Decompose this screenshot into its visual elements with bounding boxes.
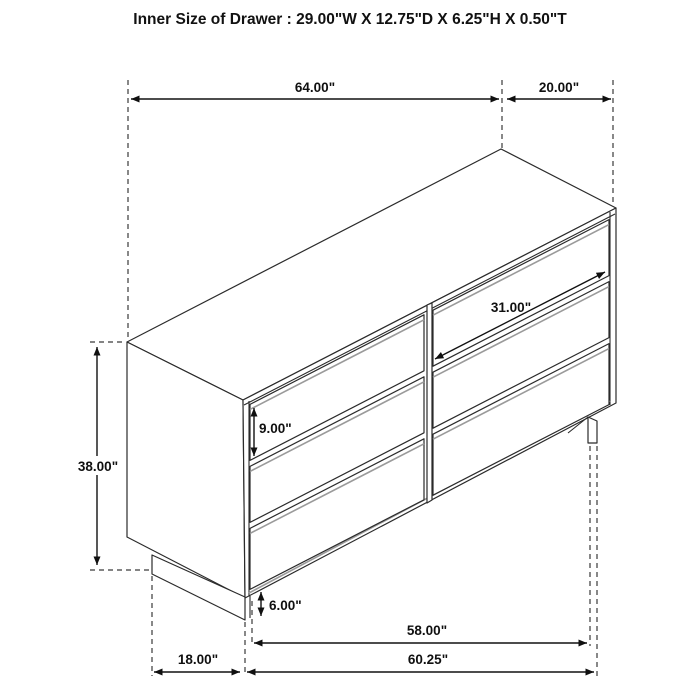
dimension-label: 64.00" [295,80,335,95]
base-right-leg [588,417,597,443]
diagram-title: Inner Size of Drawer : 29.00"W X 12.75"D… [133,11,567,28]
dimension-label: 38.00" [78,459,118,474]
dim-base-height-6: 6.00" [261,592,302,616]
dimension-label: 60.25" [408,652,448,667]
dimension-label: 9.00" [259,421,292,436]
center-stile [427,303,432,503]
dresser-dimension-diagram: Inner Size of Drawer : 29.00"W X 12.75"D… [0,0,700,700]
dim-bottom-depth-18: 18.00" [154,652,240,672]
dimension-label: 31.00" [491,300,531,315]
dim-height-38: 38.00" [71,347,125,565]
dim-top-width-64: 64.00" [131,80,499,99]
dimension-label: 6.00" [269,598,302,613]
dimension-label: 20.00" [539,80,579,95]
dim-top-depth-20: 20.00" [507,80,611,99]
dresser-drawing [127,149,616,620]
dim-base-width-58: 58.00" [254,623,587,643]
diagram-page: Inner Size of Drawer : 29.00"W X 12.75"D… [0,0,700,700]
dimension-label: 58.00" [407,623,447,638]
dimension-label: 18.00" [178,652,218,667]
dim-bottom-width-6025: 60.25" [247,652,594,672]
